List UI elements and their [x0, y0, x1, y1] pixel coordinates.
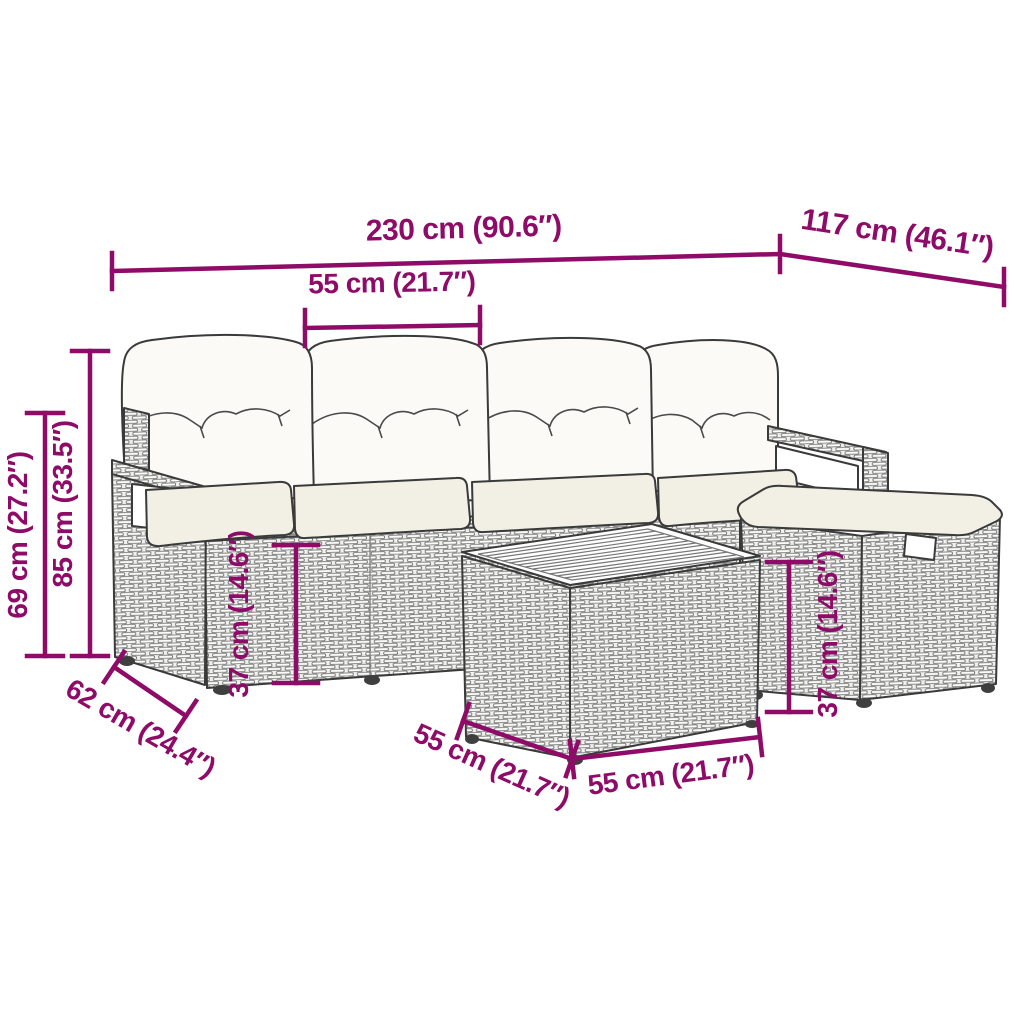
dimension-label: 230 cm (90.6″) — [365, 209, 562, 247]
dimension-label: 55 cm (21.7″) — [308, 266, 476, 300]
dimension-total-depth: 117 cm (46.1″) — [780, 203, 1004, 305]
dimension-label: 117 cm (46.1″) — [799, 203, 996, 264]
seat-cushion-1 — [146, 482, 294, 546]
dimension-label: 69 cm (27.2″) — [2, 451, 33, 618]
dimension-total-height: 85 cm (33.5″) — [47, 351, 108, 656]
coffee-table — [462, 524, 760, 765]
dimension-label: 85 cm (33.5″) — [47, 420, 78, 587]
seat-cushion-3 — [472, 474, 658, 532]
dimension-seat-width: 55 cm (21.7″) — [305, 266, 480, 346]
ottoman-cushion — [738, 486, 1002, 535]
dimension-label: 37 cm (14.6″) — [223, 530, 254, 697]
dimension-label: 62 cm (24.4″) — [61, 673, 221, 783]
product-dimension-diagram: 230 cm (90.6″) 117 cm (46.1″) 55 cm (21.… — [0, 0, 1024, 1024]
ottoman — [738, 486, 1002, 708]
dimension-label: 37 cm (14.6″) — [812, 550, 843, 717]
seat-cushion-2 — [294, 478, 470, 538]
